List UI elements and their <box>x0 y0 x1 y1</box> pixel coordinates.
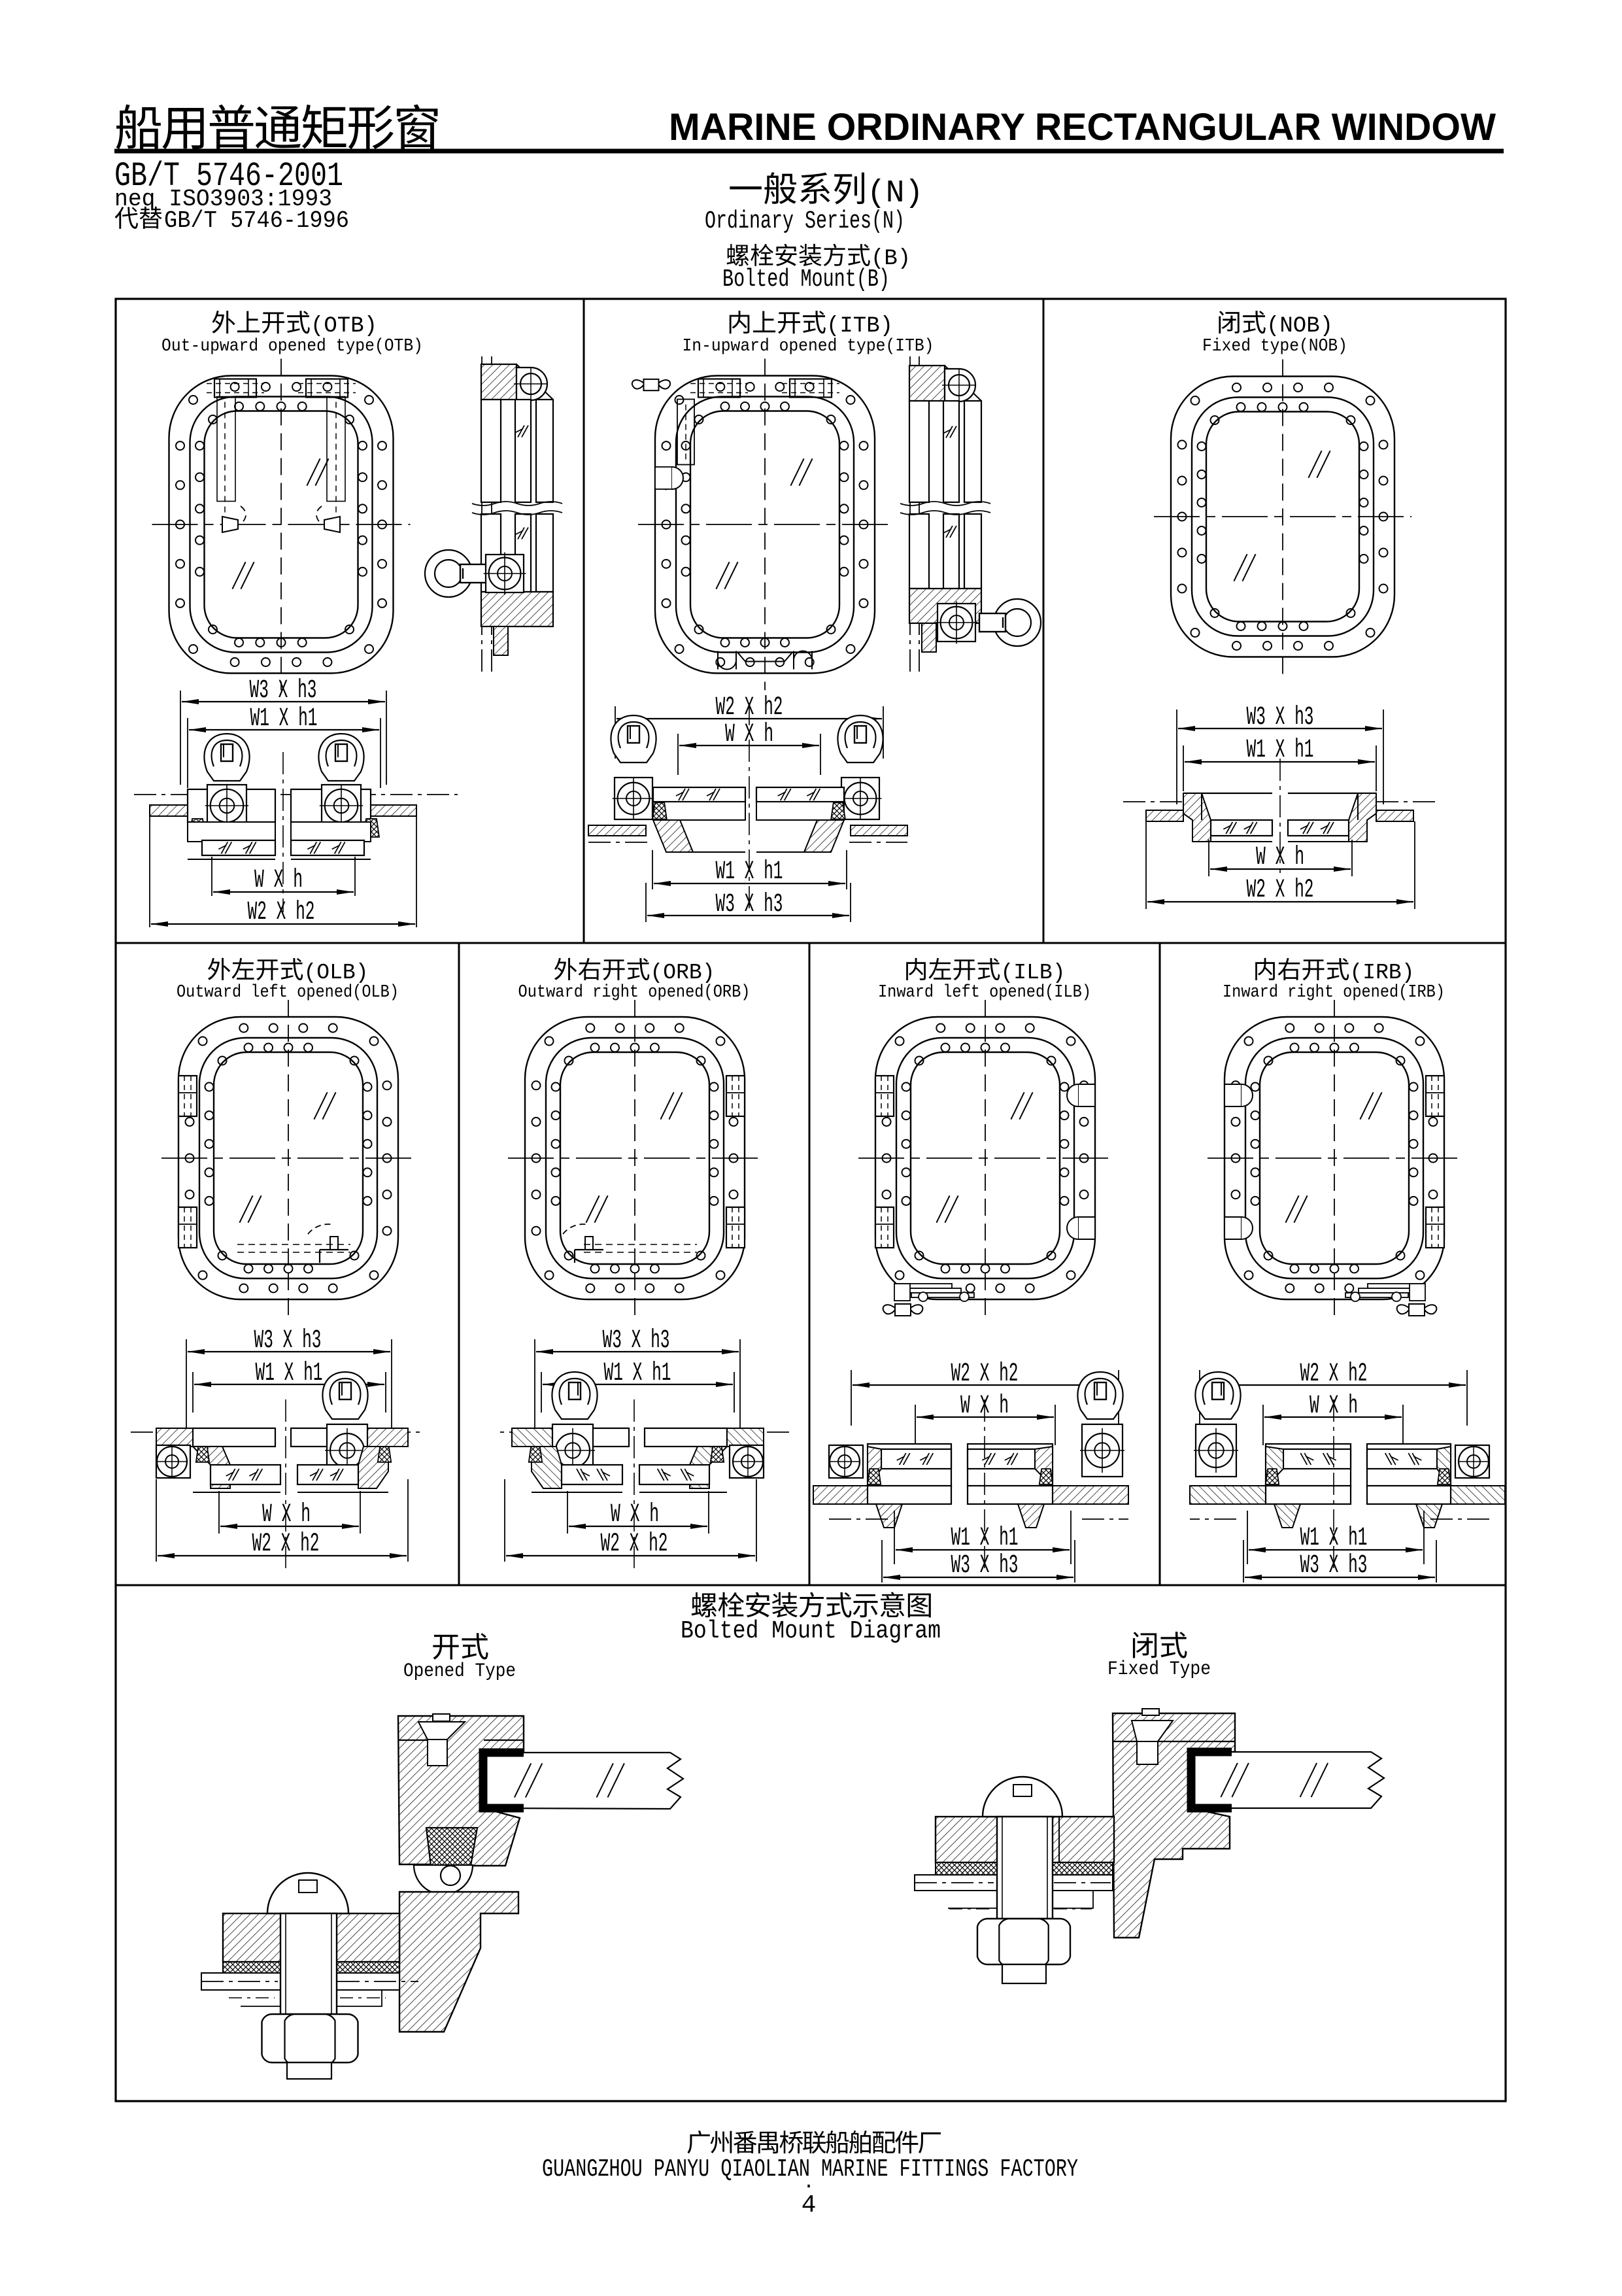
svg-text:Inward right opened(IRB): Inward right opened(IRB) <box>1223 983 1445 1002</box>
svg-text:Outward right opened(ORB): Outward right opened(ORB) <box>518 983 751 1002</box>
svg-text:GB/T 5746-1996: GB/T 5746-1996 <box>164 207 349 234</box>
svg-text:(IRB): (IRB) <box>1350 961 1415 985</box>
svg-text:(ORB): (ORB) <box>650 961 715 985</box>
svg-text:MARINE ORDINARY RECTANGULAR WI: MARINE ORDINARY RECTANGULAR WINDOW <box>669 106 1496 148</box>
svg-text:Outward left opened(OLB): Outward left opened(OLB) <box>177 983 399 1002</box>
svg-text:W2 X h2: W2 X h2 <box>248 898 315 927</box>
svg-text:In-upward opened type(ITB): In-upward opened type(ITB) <box>683 337 934 356</box>
svg-text:W X h: W X h <box>611 1500 659 1530</box>
svg-text:4: 4 <box>802 2191 817 2219</box>
svg-text:(NOB): (NOB) <box>1266 314 1333 339</box>
svg-text:W1 X h1: W1 X h1 <box>716 857 783 887</box>
svg-text:Inward left opened(ILB): Inward left opened(ILB) <box>878 983 1091 1002</box>
svg-text:Out-upward opened type(OTB): Out-upward opened type(OTB) <box>161 337 423 356</box>
svg-text:Opened Type: Opened Type <box>403 1660 516 1683</box>
svg-text:W X h: W X h <box>1256 843 1304 872</box>
svg-text:W2 X h2: W2 X h2 <box>252 1530 320 1559</box>
svg-text:(OTB): (OTB) <box>311 314 377 339</box>
svg-text:W X h: W X h <box>262 1500 311 1530</box>
svg-text:W1 X h1: W1 X h1 <box>1300 1524 1368 1553</box>
svg-text:Bolted Mount(B): Bolted Mount(B) <box>722 266 890 294</box>
svg-text:W2 X h2: W2 X h2 <box>601 1530 668 1559</box>
svg-text:Ordinary Series(N): Ordinary Series(N) <box>705 207 905 235</box>
svg-text:W1 X h1: W1 X h1 <box>951 1524 1019 1553</box>
svg-text:W3 X h3: W3 X h3 <box>1300 1551 1368 1581</box>
svg-text:W2 X h2: W2 X h2 <box>1247 876 1314 905</box>
svg-text:Fixed type(NOB): Fixed type(NOB) <box>1202 337 1347 356</box>
svg-text:Fixed Type: Fixed Type <box>1107 1658 1211 1681</box>
svg-text:(ILB): (ILB) <box>1001 961 1066 985</box>
svg-text:(ITB): (ITB) <box>826 314 893 339</box>
svg-text:W X h: W X h <box>254 866 303 895</box>
svg-text:W3 X h3: W3 X h3 <box>951 1551 1019 1581</box>
svg-text:Bolted Mount Diagram: Bolted Mount Diagram <box>681 1617 941 1645</box>
svg-text:(N): (N) <box>867 176 923 211</box>
svg-text:(OLB): (OLB) <box>304 961 369 985</box>
svg-text:.: . <box>803 2172 815 2194</box>
